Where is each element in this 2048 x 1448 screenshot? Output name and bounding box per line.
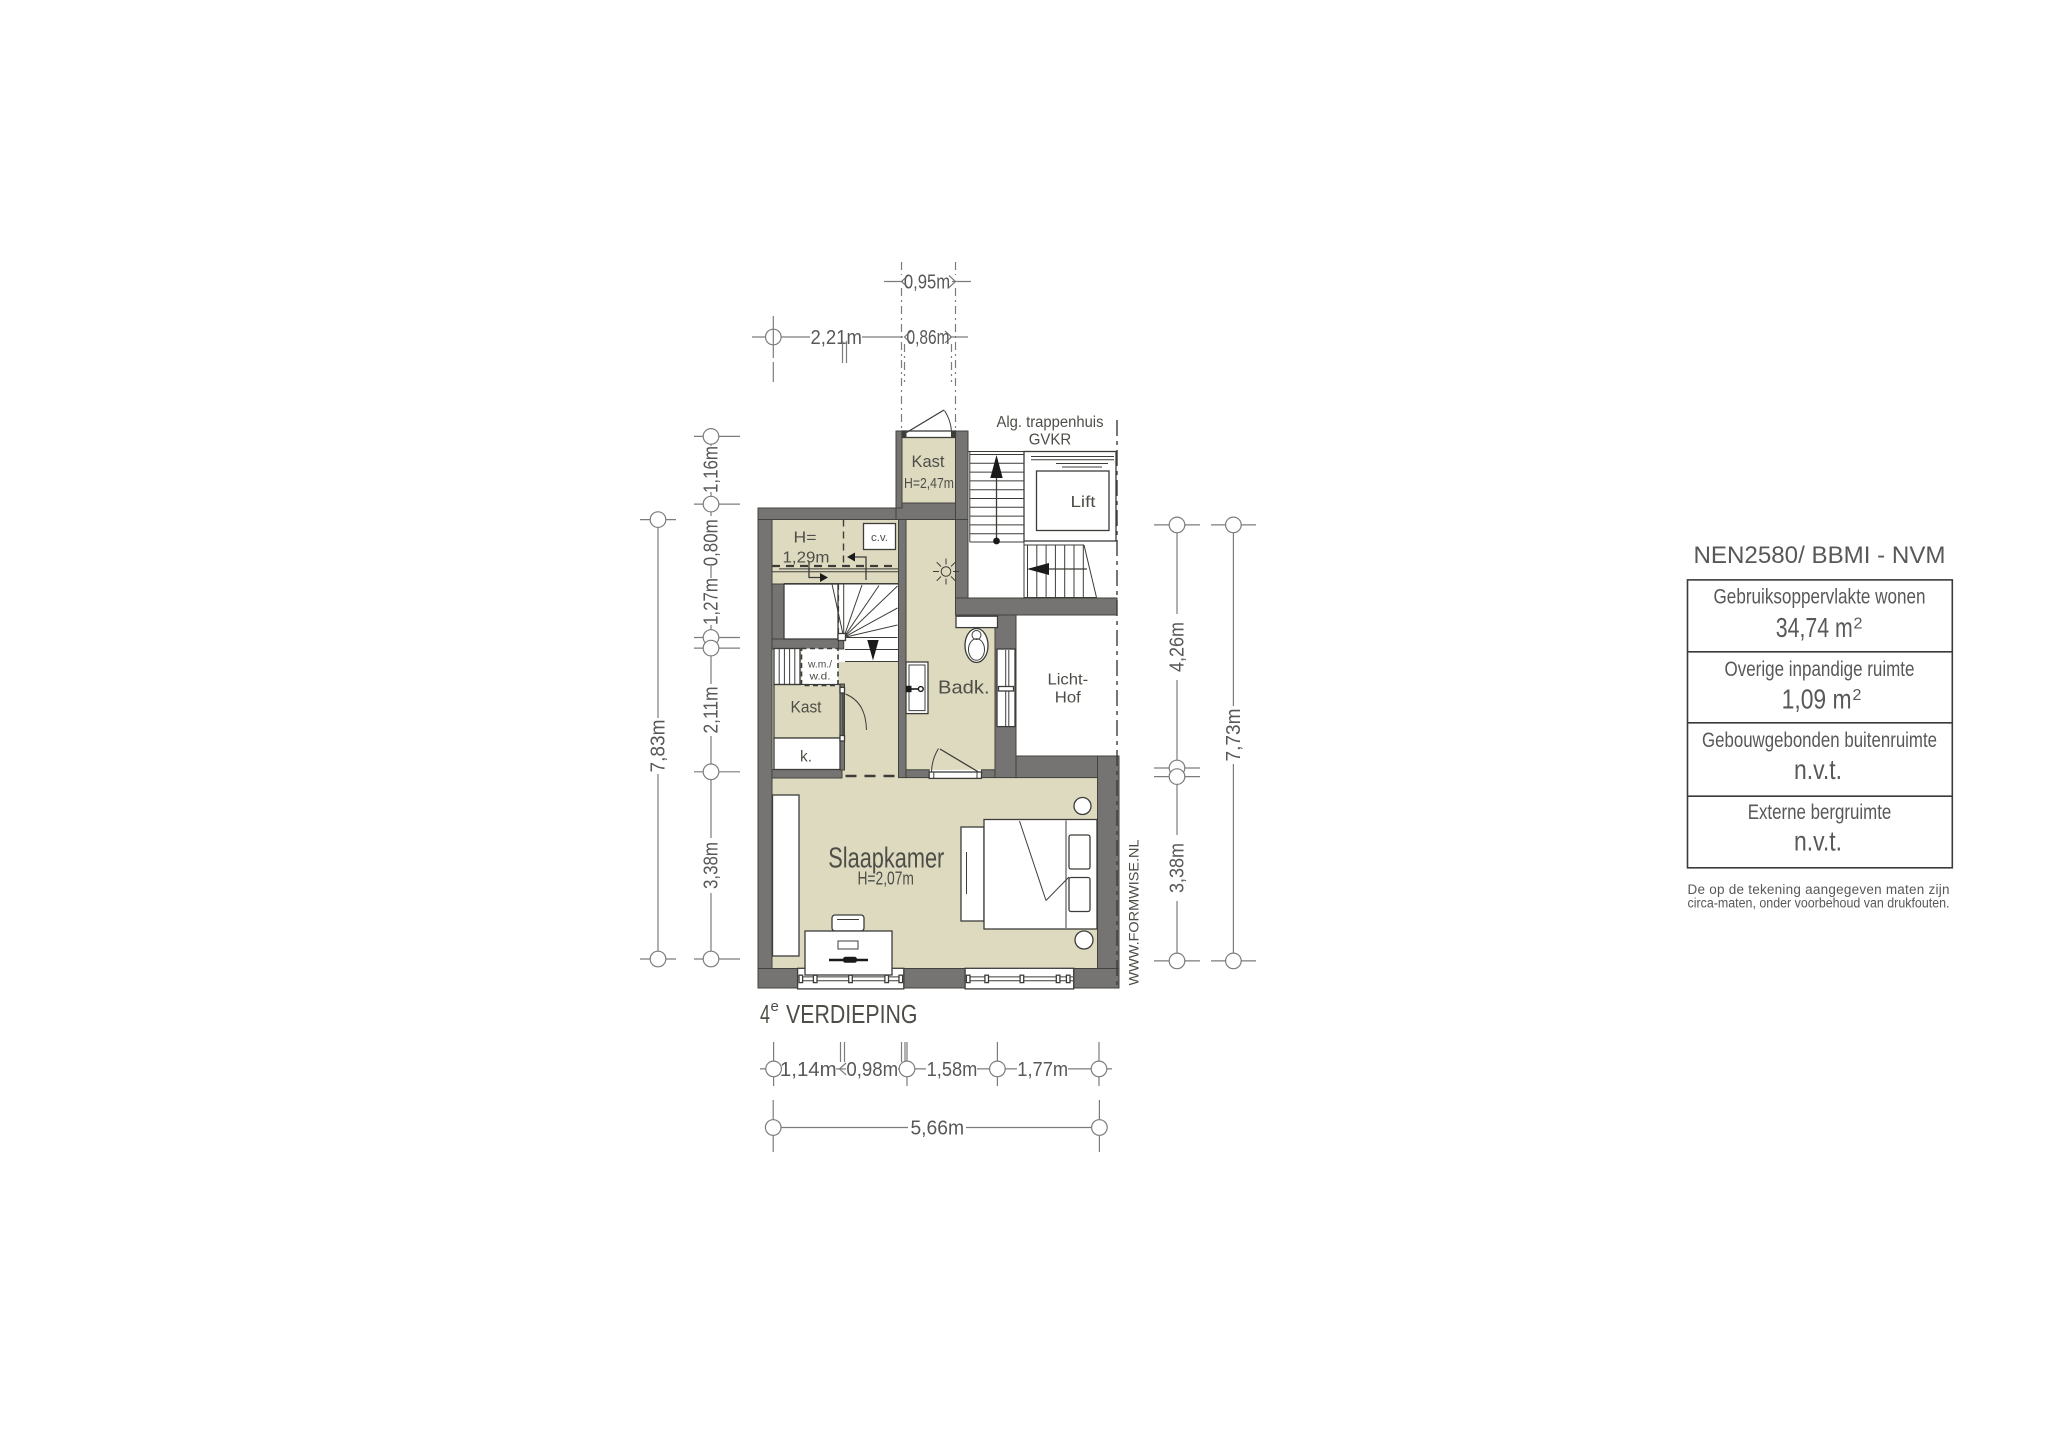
svg-text:n.v.t.: n.v.t. — [1794, 754, 1842, 785]
svg-text:4,26m: 4,26m — [1167, 622, 1189, 672]
svg-text:1,14m: 1,14m — [780, 1059, 837, 1081]
svg-text:1,16m: 1,16m — [701, 446, 723, 493]
svg-text:1,77m: 1,77m — [1017, 1059, 1068, 1081]
svg-text:Gebouwgebonden buitenruimte: Gebouwgebonden buitenruimte — [1702, 729, 1937, 752]
svg-text:2,21m: 2,21m — [811, 327, 862, 349]
svg-text:1,29m: 1,29m — [783, 550, 830, 567]
svg-text:34,74 m: 34,74 m — [1776, 612, 1853, 643]
svg-text:Overige inpandige ruimte: Overige inpandige ruimte — [1725, 658, 1915, 681]
svg-text:7,73m: 7,73m — [1223, 709, 1245, 762]
svg-text:1,09 m: 1,09 m — [1782, 684, 1852, 715]
svg-text:H=: H= — [794, 530, 817, 547]
svg-text:circa-maten, onder voorbehoud: circa-maten, onder voorbehoud van drukfo… — [1688, 896, 1950, 911]
svg-text:Kast: Kast — [912, 452, 945, 471]
svg-text:2: 2 — [1854, 616, 1863, 633]
svg-text:Hof: Hof — [1055, 690, 1082, 707]
svg-text:Kast: Kast — [791, 698, 822, 717]
svg-text:VERDIEPING: VERDIEPING — [786, 999, 918, 1029]
svg-text:7,83m: 7,83m — [648, 720, 670, 773]
svg-text:Alg. trappenhuis: Alg. trappenhuis — [997, 414, 1104, 431]
svg-text:NEN2580/ BBMI - NVM: NEN2580/ BBMI - NVM — [1694, 542, 1946, 569]
svg-text:5,66m: 5,66m — [910, 1117, 964, 1139]
svg-text:2: 2 — [1853, 687, 1862, 704]
svg-text:w.m./: w.m./ — [807, 659, 832, 671]
svg-text:k.: k. — [800, 749, 812, 766]
svg-text:Lift: Lift — [1071, 494, 1097, 511]
svg-text:0,86m: 0,86m — [907, 327, 950, 349]
svg-text:Gebruiksoppervlakte wonen: Gebruiksoppervlakte wonen — [1714, 586, 1926, 609]
svg-text:H=2,07m: H=2,07m — [857, 867, 914, 888]
svg-text:0,80m: 0,80m — [701, 519, 723, 566]
svg-text:1,58m: 1,58m — [927, 1059, 978, 1081]
svg-text:WWW.FORMWISE.NL: WWW.FORMWISE.NL — [1127, 839, 1142, 986]
svg-text:4: 4 — [760, 999, 770, 1029]
svg-text:3,38m: 3,38m — [1167, 843, 1189, 893]
svg-text:0,98m: 0,98m — [846, 1059, 898, 1081]
svg-text:c.v.: c.v. — [871, 532, 888, 544]
svg-text:2,11m: 2,11m — [701, 687, 723, 734]
svg-text:Licht-: Licht- — [1048, 672, 1089, 689]
svg-text:n.v.t.: n.v.t. — [1794, 826, 1842, 857]
svg-text:1,27m: 1,27m — [701, 578, 723, 625]
svg-text:Externe bergruimte: Externe bergruimte — [1748, 801, 1892, 824]
svg-text:3,38m: 3,38m — [701, 842, 723, 889]
svg-text:Badk.: Badk. — [938, 678, 990, 698]
svg-text:e: e — [771, 998, 779, 1015]
svg-text:0,95m: 0,95m — [904, 272, 950, 294]
svg-text:w.d.: w.d. — [808, 671, 830, 683]
svg-text:H=2,47m: H=2,47m — [904, 476, 954, 492]
svg-text:GVKR: GVKR — [1029, 432, 1072, 449]
